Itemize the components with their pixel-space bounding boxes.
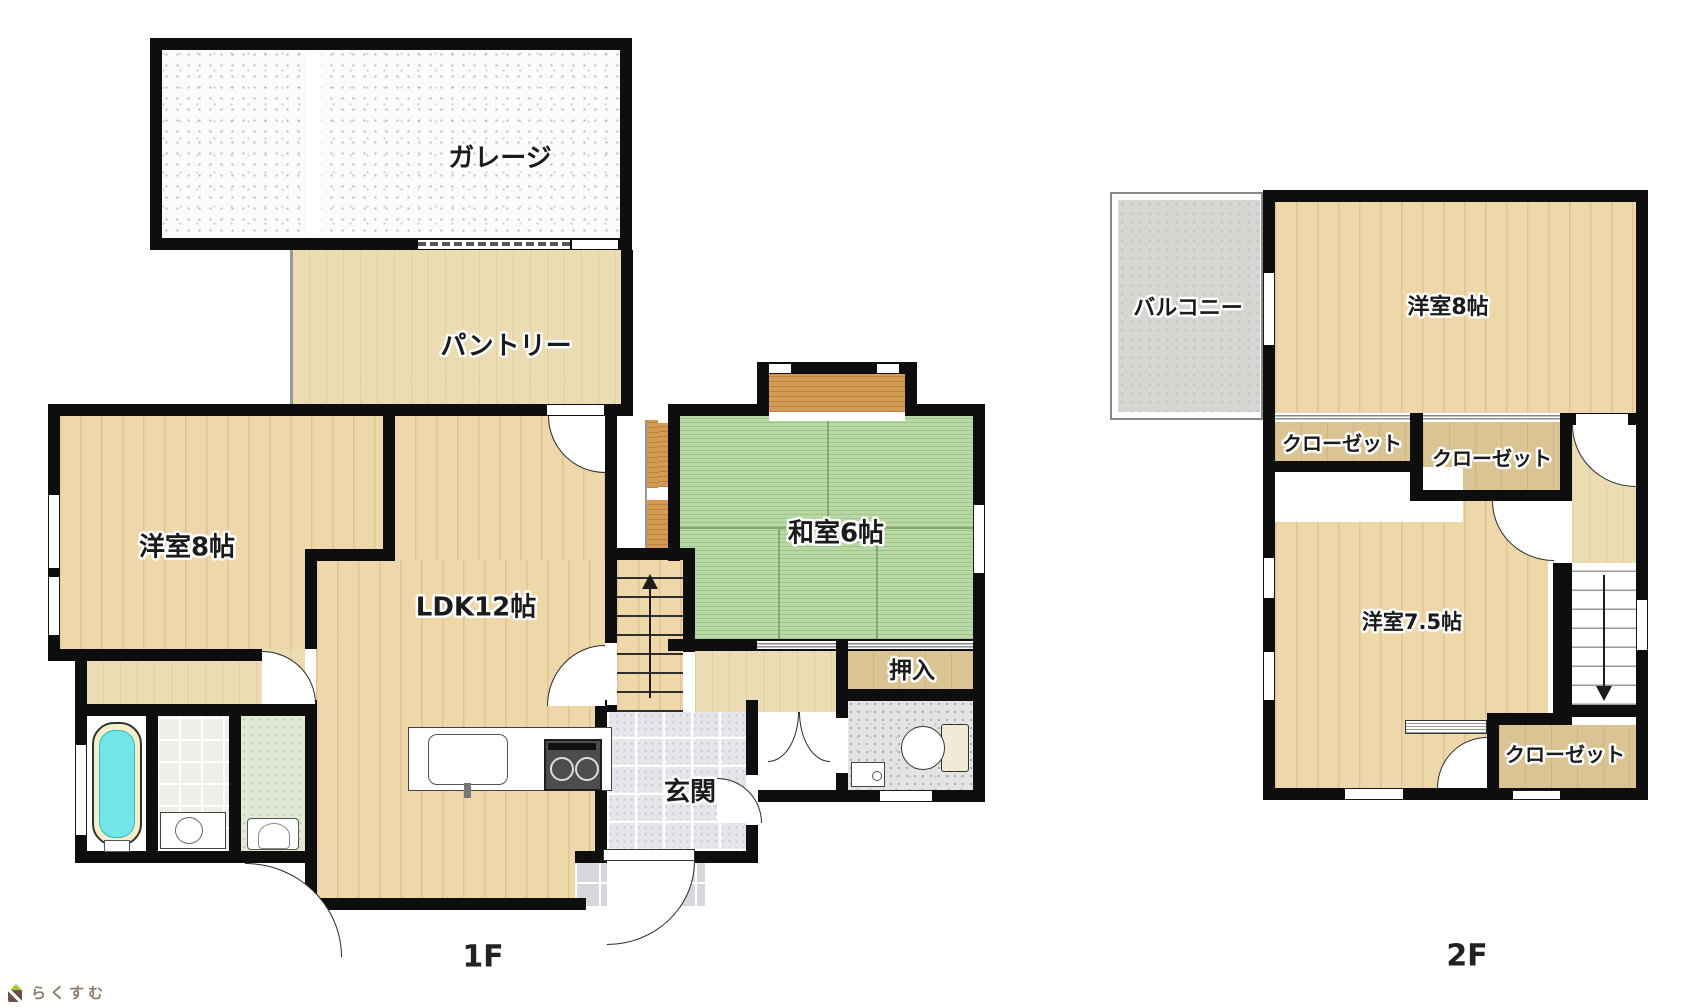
floorplan-canvas: ガレージ パントリー 洋室8帖 LDK12帖 和室6帖 押入 玄関 1F バルコ… bbox=[0, 0, 1701, 1007]
bedroom8-1f-window-1 bbox=[48, 495, 60, 568]
floor1-label: 1F bbox=[462, 940, 503, 975]
logo-body-icon bbox=[8, 990, 22, 1002]
bath-faucet-stand bbox=[104, 840, 130, 852]
f2-wall-top bbox=[1263, 190, 1648, 202]
washitsu-wall-west bbox=[668, 404, 680, 561]
bedroom8-1f-window-2 bbox=[48, 577, 60, 635]
closet-b-track bbox=[1423, 413, 1560, 422]
logo-text: らくすむ bbox=[31, 982, 107, 1003]
toilet-bowl bbox=[901, 726, 945, 770]
bedroom75-label: 洋室7.5帖 bbox=[1362, 606, 1462, 636]
bay-window-sill-wood bbox=[769, 374, 905, 412]
genkan-label: 玄関 bbox=[664, 772, 716, 809]
kitchen-faucet-icon bbox=[464, 783, 471, 798]
balcony-door-window bbox=[1263, 273, 1275, 345]
garage-side-opening bbox=[572, 240, 618, 249]
f2-wall-bottom bbox=[1263, 788, 1648, 800]
ldk-step-wall-v bbox=[305, 549, 317, 649]
genkan-double-door-right-arc bbox=[799, 712, 830, 762]
ldk-step-wall-h bbox=[305, 549, 395, 561]
closet-divider-wall bbox=[1410, 413, 1423, 501]
garage-wall-left bbox=[150, 38, 162, 250]
pantry-wall-right bbox=[621, 250, 633, 413]
genkan-wall-bottom-right bbox=[695, 851, 746, 863]
closet-a-wall-bottom bbox=[1263, 461, 1422, 472]
oshiire-label: 押入 bbox=[889, 651, 935, 685]
bay-window-sill-white bbox=[769, 412, 905, 421]
bathroom-wall-top bbox=[75, 704, 316, 716]
stairs-2f-arrow-line bbox=[1603, 575, 1605, 687]
garage-wall-right bbox=[620, 38, 632, 250]
front-door-leaf bbox=[603, 849, 695, 861]
toilet-door-opening bbox=[836, 718, 848, 773]
east-wing-wall-south bbox=[746, 790, 985, 802]
washroom-powder-divider bbox=[229, 716, 241, 851]
stairs-2f-wall-west bbox=[1553, 563, 1572, 717]
stove-top-strip bbox=[548, 743, 596, 750]
toilet-tank bbox=[941, 724, 969, 772]
bedroom75-window-2 bbox=[1263, 652, 1275, 700]
stairs-1f-arrow-line bbox=[649, 586, 651, 698]
garage-shutter-dash bbox=[418, 242, 570, 246]
bedroom8-ldk-divider bbox=[383, 404, 395, 561]
bedroom75-window-1 bbox=[1263, 558, 1275, 598]
closet-a-label: クローゼット bbox=[1282, 428, 1402, 457]
stove-burner-icon bbox=[550, 757, 574, 781]
ldk-wall-bottom bbox=[305, 898, 586, 910]
stairs-2f-wall-bottom bbox=[1560, 705, 1648, 717]
washroom-basin bbox=[175, 817, 203, 844]
alcove-divider-line bbox=[645, 420, 647, 558]
stairs-1f-wall-right bbox=[683, 548, 695, 652]
ldk-label: LDK12帖 bbox=[416, 587, 536, 624]
stairs-2f-arrow-down-icon bbox=[1596, 686, 1612, 701]
washitsu-slide-panel bbox=[646, 420, 658, 488]
closet-b-label: クローゼット bbox=[1432, 443, 1552, 472]
garage-shutter-opening bbox=[418, 240, 570, 249]
garage-floor bbox=[150, 38, 632, 250]
garage-divider bbox=[306, 50, 321, 238]
bathtub-water bbox=[99, 730, 135, 838]
closet-a-track bbox=[1275, 413, 1410, 422]
washitsu-label: 和室6帖 bbox=[788, 513, 884, 550]
bedroom8-1f-door-arc bbox=[262, 651, 316, 704]
hall-east-floor bbox=[695, 650, 836, 712]
bathroom-window bbox=[75, 745, 87, 835]
closet-b-wall-right bbox=[1560, 413, 1572, 501]
toilet-window bbox=[880, 790, 932, 802]
closet-c-wall-left bbox=[1487, 713, 1499, 800]
oshiire-sliding-track bbox=[847, 641, 973, 649]
closet-c-label: クローゼット bbox=[1505, 739, 1625, 768]
main-wall-top bbox=[48, 404, 633, 416]
garage-label: ガレージ bbox=[448, 138, 551, 175]
ldk-hall-door-opening bbox=[605, 643, 617, 705]
front-door-arc bbox=[607, 861, 695, 945]
closet-c-wall-top bbox=[1487, 713, 1572, 725]
floor2-label: 2F bbox=[1446, 939, 1487, 974]
bedroom8-1f-label: 洋室8帖 bbox=[139, 527, 235, 564]
toilet-sink bbox=[851, 762, 885, 787]
oshiire-wall-bottom bbox=[836, 689, 985, 701]
stove-burner-icon bbox=[575, 757, 599, 781]
washitsu-window bbox=[973, 505, 985, 573]
bathroom-wall-bottom bbox=[75, 851, 316, 863]
washitsu-sliding-track bbox=[757, 641, 837, 649]
closet-louver-door bbox=[1405, 720, 1487, 734]
tatami-line-v2 bbox=[778, 527, 780, 639]
closet-b-wall-bottom bbox=[1423, 490, 1572, 501]
bedroom75-window-south bbox=[1345, 788, 1403, 800]
rakusumu-logo: らくすむ bbox=[8, 982, 107, 1003]
kitchen-stove bbox=[544, 739, 602, 791]
garage-wall-top bbox=[150, 38, 632, 50]
house-logo-icon bbox=[8, 984, 25, 1002]
closet-c-window-south bbox=[1513, 790, 1560, 800]
pantry-edge-left bbox=[290, 250, 293, 412]
bathtub bbox=[92, 722, 142, 846]
bay-window-notch-left bbox=[769, 364, 791, 373]
toilet-sink-drain bbox=[872, 771, 882, 781]
pantry-door-opening bbox=[547, 405, 604, 415]
powder-sink-bowl bbox=[258, 823, 290, 849]
bedroom8-2f-label: 洋室8帖 bbox=[1407, 289, 1488, 321]
stairs-2f-window bbox=[1636, 600, 1648, 650]
bath-washroom-divider bbox=[146, 716, 158, 851]
pantry-label: パントリー bbox=[440, 326, 571, 363]
powder-ldk-wall bbox=[305, 700, 317, 851]
kitchen-sink bbox=[428, 734, 508, 785]
east-wing-wall-right bbox=[973, 639, 985, 802]
powder-sink bbox=[247, 818, 299, 850]
balcony-label: バルコニー bbox=[1133, 290, 1243, 322]
tatami-line-v1 bbox=[827, 416, 829, 527]
genkan-double-door-left-arc bbox=[768, 712, 799, 762]
stairs-1f-arrow-up-icon bbox=[642, 574, 658, 589]
bay-window-notch-right bbox=[877, 364, 899, 373]
washitsu-wall-top-left bbox=[668, 404, 769, 416]
stair-hall-door-opening bbox=[1576, 414, 1628, 425]
